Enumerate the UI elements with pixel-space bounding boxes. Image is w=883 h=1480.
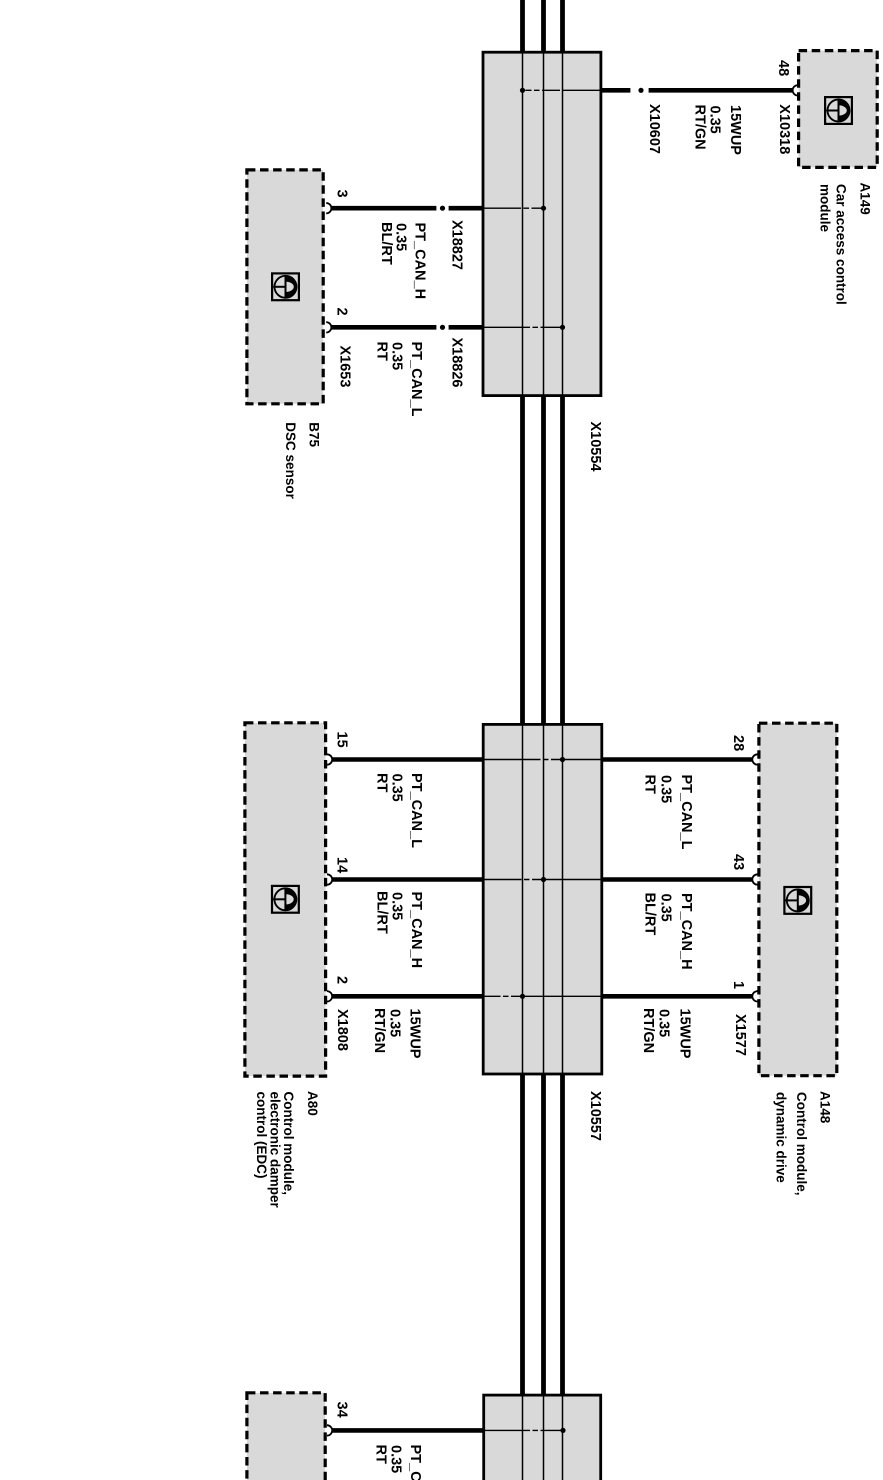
- svg-text:34: 34: [333, 1402, 349, 1418]
- svg-text:BL/RT: BL/RT: [378, 222, 394, 265]
- svg-text:0.35: 0.35: [386, 1009, 402, 1037]
- svg-text:RT: RT: [373, 342, 389, 361]
- svg-text:X10557: X10557: [587, 1091, 603, 1141]
- svg-text:0.35: 0.35: [655, 1009, 671, 1037]
- svg-text:B75: B75: [307, 422, 322, 447]
- svg-text:PT_CAN_L: PT_CAN_L: [408, 342, 424, 417]
- svg-text:X1653: X1653: [336, 346, 352, 388]
- svg-text:0.35: 0.35: [706, 106, 722, 134]
- svg-text:0.35: 0.35: [657, 894, 673, 922]
- svg-text:PT_CAN_H: PT_CAN_H: [408, 892, 424, 969]
- svg-text:PT_CAN_L: PT_CAN_L: [408, 773, 424, 848]
- svg-text:48: 48: [775, 60, 791, 76]
- svg-text:0.35: 0.35: [388, 342, 404, 370]
- svg-text:2: 2: [333, 976, 349, 984]
- svg-text:15: 15: [333, 732, 349, 748]
- svg-text:15WUP: 15WUP: [676, 1009, 692, 1059]
- svg-text:RT: RT: [373, 773, 389, 792]
- svg-text:A80: A80: [305, 1091, 320, 1116]
- svg-text:X18826: X18826: [448, 338, 464, 388]
- svg-text:module: module: [818, 184, 833, 232]
- svg-text:X1577: X1577: [732, 1014, 748, 1056]
- svg-text:28: 28: [730, 735, 746, 751]
- svg-text:43: 43: [730, 854, 746, 870]
- svg-text:0.35: 0.35: [388, 774, 404, 802]
- svg-text:0.35: 0.35: [387, 1445, 403, 1473]
- svg-text:14: 14: [333, 857, 349, 873]
- svg-text:PT_CAN_L: PT_CAN_L: [407, 1445, 423, 1480]
- svg-text:1: 1: [730, 981, 746, 989]
- svg-text:X18827: X18827: [448, 220, 464, 270]
- svg-text:2: 2: [333, 308, 349, 316]
- svg-text:0.35: 0.35: [657, 775, 673, 803]
- svg-text:PT_CAN_H: PT_CAN_H: [678, 893, 694, 970]
- svg-text:0.35: 0.35: [388, 892, 404, 920]
- svg-text:3: 3: [333, 190, 349, 198]
- svg-text:PT_CAN_H: PT_CAN_H: [412, 223, 428, 300]
- svg-text:15WUP: 15WUP: [406, 1009, 422, 1059]
- svg-text:X1808: X1808: [334, 1009, 350, 1051]
- svg-text:X10607: X10607: [646, 104, 662, 154]
- svg-text:X10554: X10554: [587, 422, 603, 472]
- svg-text:A149: A149: [858, 183, 873, 215]
- svg-text:BL/RT: BL/RT: [373, 891, 389, 934]
- svg-text:BL/RT: BL/RT: [641, 893, 657, 936]
- svg-text:RT: RT: [372, 1445, 388, 1464]
- svg-text:A148: A148: [818, 1091, 833, 1124]
- svg-text:PT_CAN_L: PT_CAN_L: [678, 775, 694, 850]
- svg-text:15WUP: 15WUP: [727, 105, 743, 155]
- svg-text:dynamic drive: dynamic drive: [774, 1092, 789, 1183]
- svg-text:RT/GN: RT/GN: [371, 1008, 387, 1053]
- svg-text:RT/GN: RT/GN: [691, 105, 707, 150]
- svg-text:RT: RT: [641, 775, 657, 794]
- svg-text:RT/GN: RT/GN: [640, 1008, 656, 1053]
- svg-text:Control module,: Control module,: [794, 1092, 809, 1196]
- svg-text:Car access control: Car access control: [834, 184, 849, 305]
- svg-text:DSC sensor: DSC sensor: [283, 422, 298, 499]
- svg-text:X10318: X10318: [776, 104, 792, 154]
- svg-text:control (EDC): control (EDC): [254, 1092, 269, 1179]
